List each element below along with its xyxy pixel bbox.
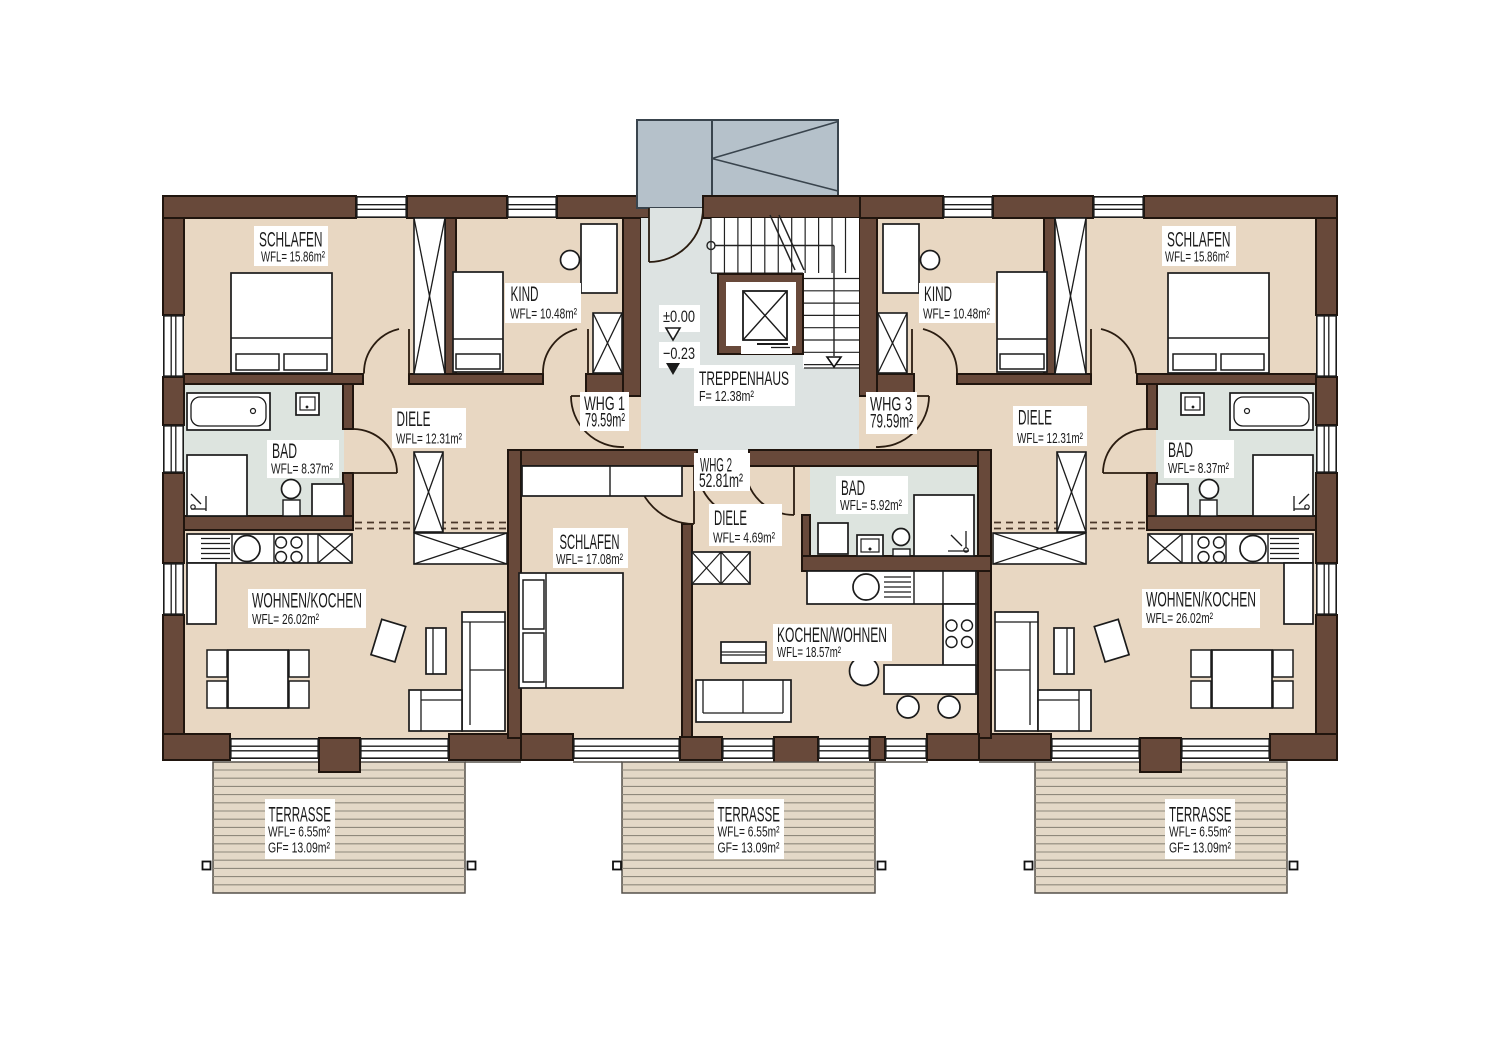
svg-text:WFL= 5.92m²: WFL= 5.92m² (840, 497, 902, 514)
svg-text:WFL= 8.37m²: WFL= 8.37m² (271, 461, 333, 478)
svg-text:GF= 13.09m²: GF= 13.09m² (718, 840, 780, 857)
svg-text:WFL= 15.86m²: WFL= 15.86m² (1165, 249, 1229, 266)
svg-text:WFL= 10.48m²: WFL= 10.48m² (923, 306, 990, 323)
svg-text:F= 12.38m²: F= 12.38m² (699, 388, 754, 405)
svg-text:TREPPENHAUS: TREPPENHAUS (699, 369, 789, 390)
svg-text:BAD: BAD (1168, 439, 1193, 462)
svg-text:WFL= 15.86m²: WFL= 15.86m² (261, 249, 325, 266)
svg-text:WFL= 6.55m²: WFL= 6.55m² (1169, 824, 1231, 841)
svg-text:WOHNEN/KOCHEN: WOHNEN/KOCHEN (1146, 589, 1256, 612)
svg-text:WFL= 6.55m²: WFL= 6.55m² (718, 824, 780, 841)
svg-text:WFL= 18.57m²: WFL= 18.57m² (777, 644, 841, 661)
svg-text:DIELE: DIELE (397, 408, 431, 431)
svg-text:WFL= 26.02m²: WFL= 26.02m² (252, 611, 319, 628)
svg-text:WFL= 8.37m²: WFL= 8.37m² (1168, 460, 1229, 477)
svg-text:GF= 13.09m²: GF= 13.09m² (268, 840, 330, 857)
svg-text:WFL= 26.02m²: WFL= 26.02m² (1146, 610, 1213, 627)
svg-text:GF= 13.09m²: GF= 13.09m² (1169, 840, 1231, 857)
svg-text:WFL= 4.69m²: WFL= 4.69m² (713, 530, 775, 547)
svg-text:±0.00: ±0.00 (663, 307, 695, 326)
svg-text:DIELE: DIELE (1018, 407, 1052, 430)
svg-text:KIND: KIND (511, 283, 539, 306)
svg-text:DIELE: DIELE (714, 507, 747, 530)
svg-text:WFL= 12.31m²: WFL= 12.31m² (396, 431, 462, 448)
svg-text:WOHNEN/KOCHEN: WOHNEN/KOCHEN (252, 590, 362, 613)
svg-text:79.59m²: 79.59m² (870, 412, 913, 433)
svg-text:−0.23: −0.23 (663, 344, 695, 363)
svg-text:WFL= 6.55m²: WFL= 6.55m² (268, 824, 330, 841)
svg-text:52.81m²: 52.81m² (699, 471, 743, 492)
svg-text:WFL= 10.48m²: WFL= 10.48m² (510, 306, 577, 323)
svg-text:WFL= 17.08m²: WFL= 17.08m² (556, 551, 623, 568)
svg-text:WFL= 12.31m²: WFL= 12.31m² (1017, 430, 1083, 447)
svg-text:79.59m²: 79.59m² (585, 411, 625, 432)
svg-text:KIND: KIND (924, 283, 952, 306)
